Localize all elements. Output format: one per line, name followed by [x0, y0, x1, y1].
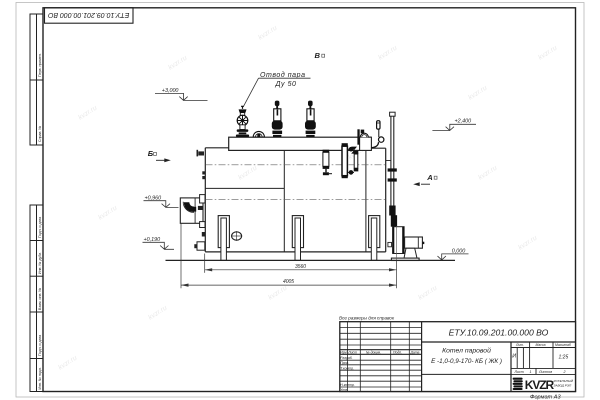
- svg-text:Справ. №: Справ. №: [38, 126, 42, 142]
- svg-text:2: 2: [563, 370, 566, 374]
- svg-text:А: А: [426, 173, 432, 182]
- svg-text:ЗАВОД РЭП: ЗАВОД РЭП: [554, 384, 573, 388]
- svg-text:В: В: [315, 51, 321, 60]
- svg-text:Подп. и дата: Подп. и дата: [38, 217, 42, 238]
- svg-text:Формат А3: Формат А3: [530, 394, 561, 400]
- svg-text:Подп.: Подп.: [393, 350, 402, 354]
- svg-text:Т.контр.: Т.контр.: [340, 367, 354, 371]
- svg-text:Пров.: Пров.: [340, 361, 349, 365]
- svg-text:Листов: Листов: [538, 370, 552, 374]
- svg-text:Масштаб: Масштаб: [555, 343, 571, 347]
- svg-text:Лит.: Лит.: [515, 343, 524, 347]
- svg-text:Инв. № дубл.: Инв. № дубл.: [38, 252, 42, 274]
- svg-text:Н.контр.: Н.контр.: [340, 383, 354, 387]
- svg-text:Изм: Изм: [340, 350, 347, 354]
- svg-text:Все размеры для справок: Все размеры для справок: [339, 316, 395, 321]
- svg-text:Дата: Дата: [410, 350, 420, 354]
- svg-text:Котел паровой: Котел паровой: [442, 347, 491, 355]
- svg-text:4005: 4005: [283, 279, 294, 285]
- svg-text:И: И: [512, 354, 516, 360]
- svg-text:ЕТУ.10.09.201.00.000 ВО: ЕТУ.10.09.201.00.000 ВО: [48, 11, 130, 18]
- svg-text:Лист: Лист: [514, 370, 524, 374]
- svg-text:Е -1,0-0,9-170- КБ ( ЖК ): Е -1,0-0,9-170- КБ ( ЖК ): [431, 358, 502, 365]
- svg-text:1:25: 1:25: [559, 355, 569, 361]
- svg-text:Отвод пара: Отвод пара: [260, 71, 306, 79]
- svg-text:Разраб.: Разраб.: [340, 356, 352, 360]
- svg-text:Инв. № подл.: Инв. № подл.: [38, 367, 42, 389]
- svg-text:Взам. инв. №: Взам. инв. №: [38, 288, 42, 310]
- svg-text:КОТЕЛЬНЫЙ: КОТЕЛЬНЫЙ: [554, 379, 574, 383]
- svg-text:Перв. примен.: Перв. примен.: [38, 53, 42, 77]
- svg-text:3560: 3560: [295, 264, 306, 270]
- svg-text:ЕТУ.10.09.201.00.000 ВО: ЕТУ.10.09.201.00.000 ВО: [449, 328, 549, 338]
- svg-text:№ докум.: № докум.: [366, 350, 381, 354]
- svg-text:Ду 50: Ду 50: [275, 81, 297, 88]
- svg-text:Утв.: Утв.: [340, 388, 348, 392]
- svg-text:1: 1: [530, 370, 532, 374]
- svg-text:Б: Б: [148, 149, 154, 158]
- svg-text:+2,400: +2,400: [455, 118, 472, 124]
- svg-text:KVZR: KVZR: [525, 378, 555, 392]
- svg-text:Масса: Масса: [536, 343, 546, 347]
- svg-text:Подп. и дата: Подп. и дата: [38, 335, 42, 356]
- svg-text:Лист: Лист: [347, 350, 357, 354]
